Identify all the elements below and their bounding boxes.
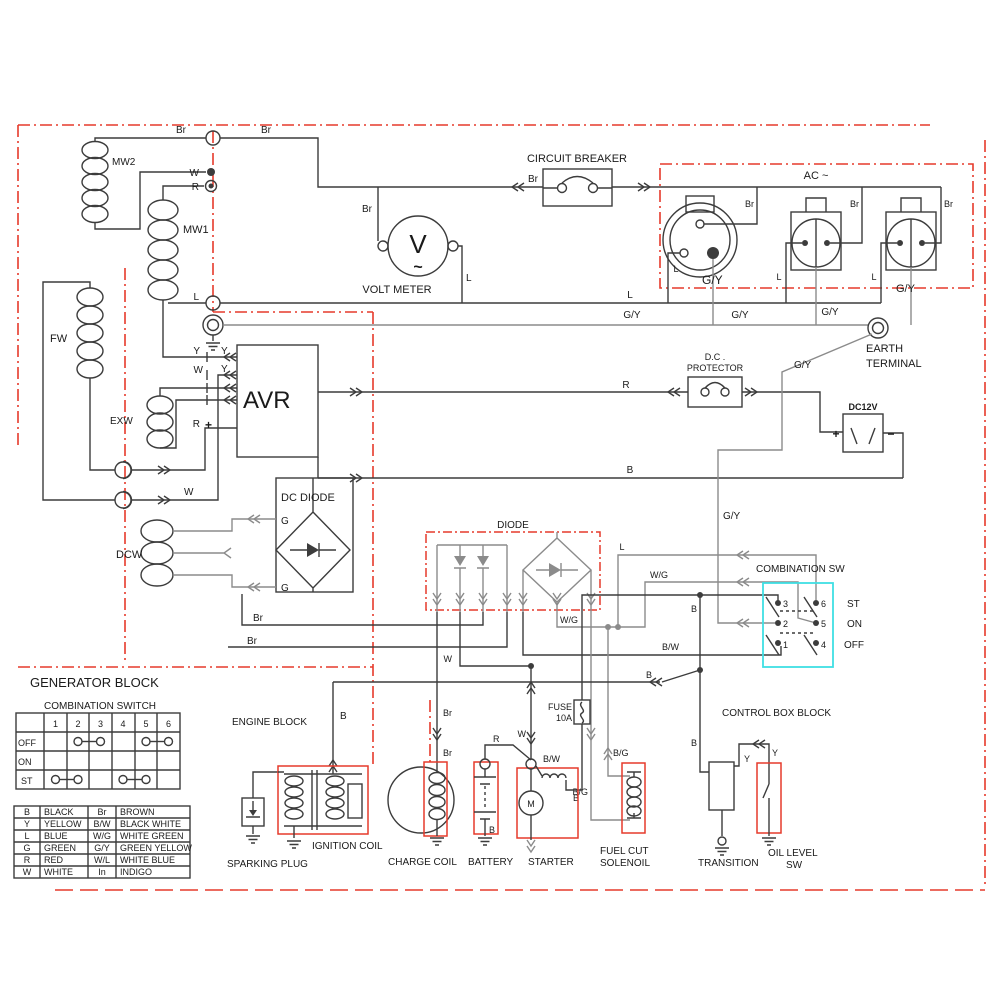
wire-label-br: Br <box>850 199 859 209</box>
wire-label-y: Y <box>772 748 778 758</box>
wire-label-g: G <box>281 583 289 594</box>
ignition-coil: IGNITION COIL <box>278 766 383 852</box>
bus-labels: L G/Y G/Y G/Y <box>223 290 868 325</box>
legend-code: W/L <box>94 855 110 865</box>
fuse: FUSE 10A <box>548 700 590 724</box>
ignition-coil-label: IGNITION COIL <box>312 841 383 852</box>
dcw-label: DCW <box>116 549 143 561</box>
wire-label-l: L <box>627 290 633 301</box>
wire-label-l: L <box>193 292 199 303</box>
legend-name: RED <box>44 855 64 865</box>
earth-label-2: TERMINAL <box>866 358 922 370</box>
wire-label-g: G <box>281 516 289 527</box>
wire-label-br: Br <box>745 199 754 209</box>
wire-label-r: R <box>622 380 629 391</box>
legend-code: G <box>23 843 30 853</box>
fuel-cut-label-2: SOLENOIL <box>600 858 650 869</box>
legend-code: L <box>24 831 29 841</box>
top-wiring: Br Br W R L <box>95 125 941 350</box>
wire-label-br: Br <box>443 708 452 718</box>
wire-label-br: Br <box>261 125 272 136</box>
wire-label-y: Y <box>193 346 200 357</box>
volt-meter-sine: ~ <box>413 259 422 276</box>
sw-pos-on: ON <box>847 619 862 630</box>
wire-label-b: B <box>489 825 495 835</box>
volt-meter-v: V <box>409 229 427 259</box>
winding-mw2: MW2 <box>82 142 136 223</box>
dc-protector-label-2: PROTECTOR <box>687 363 744 373</box>
sw-pin-1: 1 <box>783 640 788 650</box>
wire-label-y: Y <box>221 364 228 375</box>
control-box-block-label: CONTROL BOX BLOCK <box>722 708 831 719</box>
dc-diode: DC DIODE G G <box>173 478 353 594</box>
legend-code: B/W <box>94 819 112 829</box>
sw-col-6: 6 <box>166 719 171 729</box>
wire-label-b: B <box>691 738 697 748</box>
starter-label: STARTER <box>528 857 574 868</box>
wire-label-l: L <box>776 272 781 282</box>
sw-col-3: 3 <box>98 719 103 729</box>
dc12v-outlet: DC12V + − <box>832 402 903 478</box>
wire-label-r: R <box>193 419 200 430</box>
plus-sign: + <box>832 427 839 441</box>
wire-label-gy: G/Y <box>821 307 839 318</box>
mw2-label: MW2 <box>112 157 136 168</box>
wire-label-w: W <box>194 365 204 376</box>
starter-motor-m: M <box>527 799 535 809</box>
plus-sign: + <box>205 418 212 432</box>
battery-label: BATTERY <box>468 857 514 868</box>
legend-name: BLACK <box>44 807 74 817</box>
wire-label-l: L <box>673 264 678 274</box>
circuit-breaker-label: CIRCUIT BREAKER <box>527 153 627 165</box>
oil-level-label-2: SW <box>786 860 803 871</box>
wire-label-b: B <box>340 711 347 722</box>
sw-col-2: 2 <box>75 719 80 729</box>
fuse-rating: 10A <box>556 713 572 723</box>
sw-pin-2: 2 <box>783 619 788 629</box>
avr-unit: AVR Y Y W Y R + <box>131 303 318 500</box>
legend-code: Y <box>24 819 30 829</box>
ac-outlets: AC ~ Br Br Br L L L G/Y G/Y <box>663 170 953 325</box>
wire-label-br: Br <box>247 636 258 647</box>
legend-name: BLUE <box>44 831 68 841</box>
volt-meter-label: VOLT METER <box>362 284 431 296</box>
sw-pin-3: 3 <box>783 599 788 609</box>
earth-terminal: EARTH TERMINAL <box>866 318 922 370</box>
circuit-breaker: CIRCUIT BREAKER Br <box>512 153 650 206</box>
wire-label-bg: B/G <box>613 748 629 758</box>
transition: TRANSITION <box>698 762 759 869</box>
ground-icon <box>206 343 220 350</box>
wire-label-l: L <box>871 272 876 282</box>
wire-label-gy: G/Y <box>623 310 641 321</box>
legend-name: BLACK WHITE <box>120 819 181 829</box>
w-terminal-dot <box>207 168 215 176</box>
starter: M B/W STARTER <box>517 754 578 868</box>
outlet-twist-lock <box>663 187 757 325</box>
wire-label-wg: W/G <box>650 570 668 580</box>
br-return-wires: Br Br <box>228 594 507 647</box>
diode-block: DIODE <box>426 520 600 612</box>
wire-label-b: B <box>646 670 652 680</box>
winding-mw1: MW1 <box>148 200 209 300</box>
legend-name: YELLOW <box>44 819 82 829</box>
wire-label-br: Br <box>362 204 373 215</box>
combination-sw-label: COMBINATION SW <box>756 564 845 575</box>
b-return-wire: B <box>318 465 903 482</box>
oil-level-switch: Y Y OIL LEVEL SW <box>734 740 818 871</box>
legend-code: W/G <box>93 831 111 841</box>
legend-name: WHITE BLUE <box>120 855 175 865</box>
wire-label-l: L <box>466 273 472 284</box>
dc-protector-label-1: D.C . <box>705 352 726 362</box>
exw-label: EXW <box>110 416 133 427</box>
diode-label: DIODE <box>497 520 529 531</box>
legend-name: BROWN <box>120 807 155 817</box>
fuel-cut-label-1: FUEL CUT <box>600 846 649 857</box>
legend-code: In <box>98 867 106 877</box>
wire-label-bw: B/W <box>662 642 680 652</box>
wire-color-legend: B BLACK Br BROWN Y YELLOW B/W BLACK WHIT… <box>14 806 192 878</box>
battery: B BATTERY R <box>468 734 531 868</box>
wire-label-gy: G/Y <box>794 360 812 371</box>
wire-label-w: W <box>190 168 200 179</box>
legend-name: WHITE GREEN <box>120 831 184 841</box>
wire-label-br: Br <box>176 125 187 136</box>
wire-label-y: Y <box>744 754 750 764</box>
wire-label-gy: G/Y <box>896 283 916 295</box>
wire-label-r: R <box>493 734 500 744</box>
oil-level-label-1: OIL LEVEL <box>768 848 818 859</box>
sw-pos-off: OFF <box>844 640 864 651</box>
wire-label-l: L <box>619 542 624 552</box>
engine-block-label: ENGINE BLOCK <box>232 717 307 728</box>
charge-coil-label: CHARGE COIL <box>388 857 457 868</box>
outlet-duplex-2 <box>881 187 941 325</box>
transition-label: TRANSITION <box>698 858 759 869</box>
wire-label-gy: G/Y <box>702 273 723 287</box>
wire-label-b: B <box>691 604 697 614</box>
sparking-plug-label: SPARKING PLUG <box>227 859 308 870</box>
legend-name: INDIGO <box>120 867 152 877</box>
dc12v-label: DC12V <box>848 402 877 412</box>
sw-col-5: 5 <box>143 719 148 729</box>
legend-code: Br <box>98 807 107 817</box>
wire-label-br: Br <box>528 174 539 185</box>
wire-label-w: W <box>184 487 194 498</box>
wire-label-br: Br <box>443 748 452 758</box>
legend-code: G/Y <box>94 843 110 853</box>
winding-fw: FW <box>50 288 103 378</box>
switch-table-title: COMBINATION SWITCH <box>44 701 156 712</box>
generator-wiring-diagram: MW2 MW1 FW EXW DCW Br Br W R L CIRCUIT B… <box>0 0 994 994</box>
generator-block-label: GENERATOR BLOCK <box>30 675 159 690</box>
wire-label-gy: G/Y <box>731 310 749 321</box>
legend-code: R <box>24 855 31 865</box>
wire-label-b: B <box>627 465 634 476</box>
sw-row-off: OFF <box>18 738 36 748</box>
legend-name: GREEN <box>44 843 76 853</box>
grommet-outer <box>203 315 223 335</box>
dc-diode-label: DC DIODE <box>281 492 335 504</box>
wire-label-br: Br <box>253 613 264 624</box>
wire-label-y: Y <box>221 346 228 357</box>
sw-pin-6: 6 <box>821 599 826 609</box>
sw-pos-st: ST <box>847 599 860 610</box>
legend-code: B <box>24 807 30 817</box>
fuse-label: FUSE <box>548 702 572 712</box>
legend-name: GREEN YELLOW <box>120 843 192 853</box>
winding-exw: EXW <box>110 396 173 448</box>
minus-sign: − <box>887 427 894 441</box>
combination-switch-table: COMBINATION SWITCH 1 2 3 4 5 6 OFF ON ST <box>16 701 180 789</box>
sw-pin-5: 5 <box>821 619 826 629</box>
legend-name: WHITE <box>44 867 73 877</box>
wire-label-w: W <box>444 654 453 664</box>
earth-label-1: EARTH <box>866 343 903 355</box>
mid-wire-network: Br Br W W B/W W/G W/G L B/G B/G B B B B … <box>329 542 816 820</box>
combination-switch: COMBINATION SW 3 6 2 5 1 4 ST ON OFF <box>756 564 864 667</box>
wire-label-br: Br <box>944 199 953 209</box>
dc-protector: D.C . PROTECTOR R <box>318 352 843 432</box>
sw-row-on: ON <box>18 757 32 767</box>
charge-coil: CHARGE COIL <box>388 762 457 868</box>
harness-connectors: W <box>43 282 194 509</box>
wire-label-w: W <box>518 729 527 739</box>
wire-label-bw: B/W <box>543 754 561 764</box>
legend-code: W <box>23 867 32 877</box>
sw-col-4: 4 <box>120 719 125 729</box>
ac-label: AC ~ <box>804 170 829 182</box>
grommet-inner <box>208 320 219 331</box>
wire-label-wg: W/G <box>560 615 578 625</box>
avr-label: AVR <box>243 387 291 414</box>
fw-label: FW <box>50 333 68 345</box>
sw-pin-4: 4 <box>821 640 826 650</box>
sw-row-st: ST <box>21 776 33 786</box>
mw1-label: MW1 <box>183 224 209 236</box>
wiring-diagram-page: MW2 MW1 FW EXW DCW Br Br W R L CIRCUIT B… <box>0 0 994 994</box>
sw-col-1: 1 <box>53 719 58 729</box>
wire-label-gy: G/Y <box>723 511 741 522</box>
wire-label-r: R <box>192 182 199 193</box>
fuel-cut-solenoid: FUEL CUT SOLENOIL <box>600 763 650 869</box>
